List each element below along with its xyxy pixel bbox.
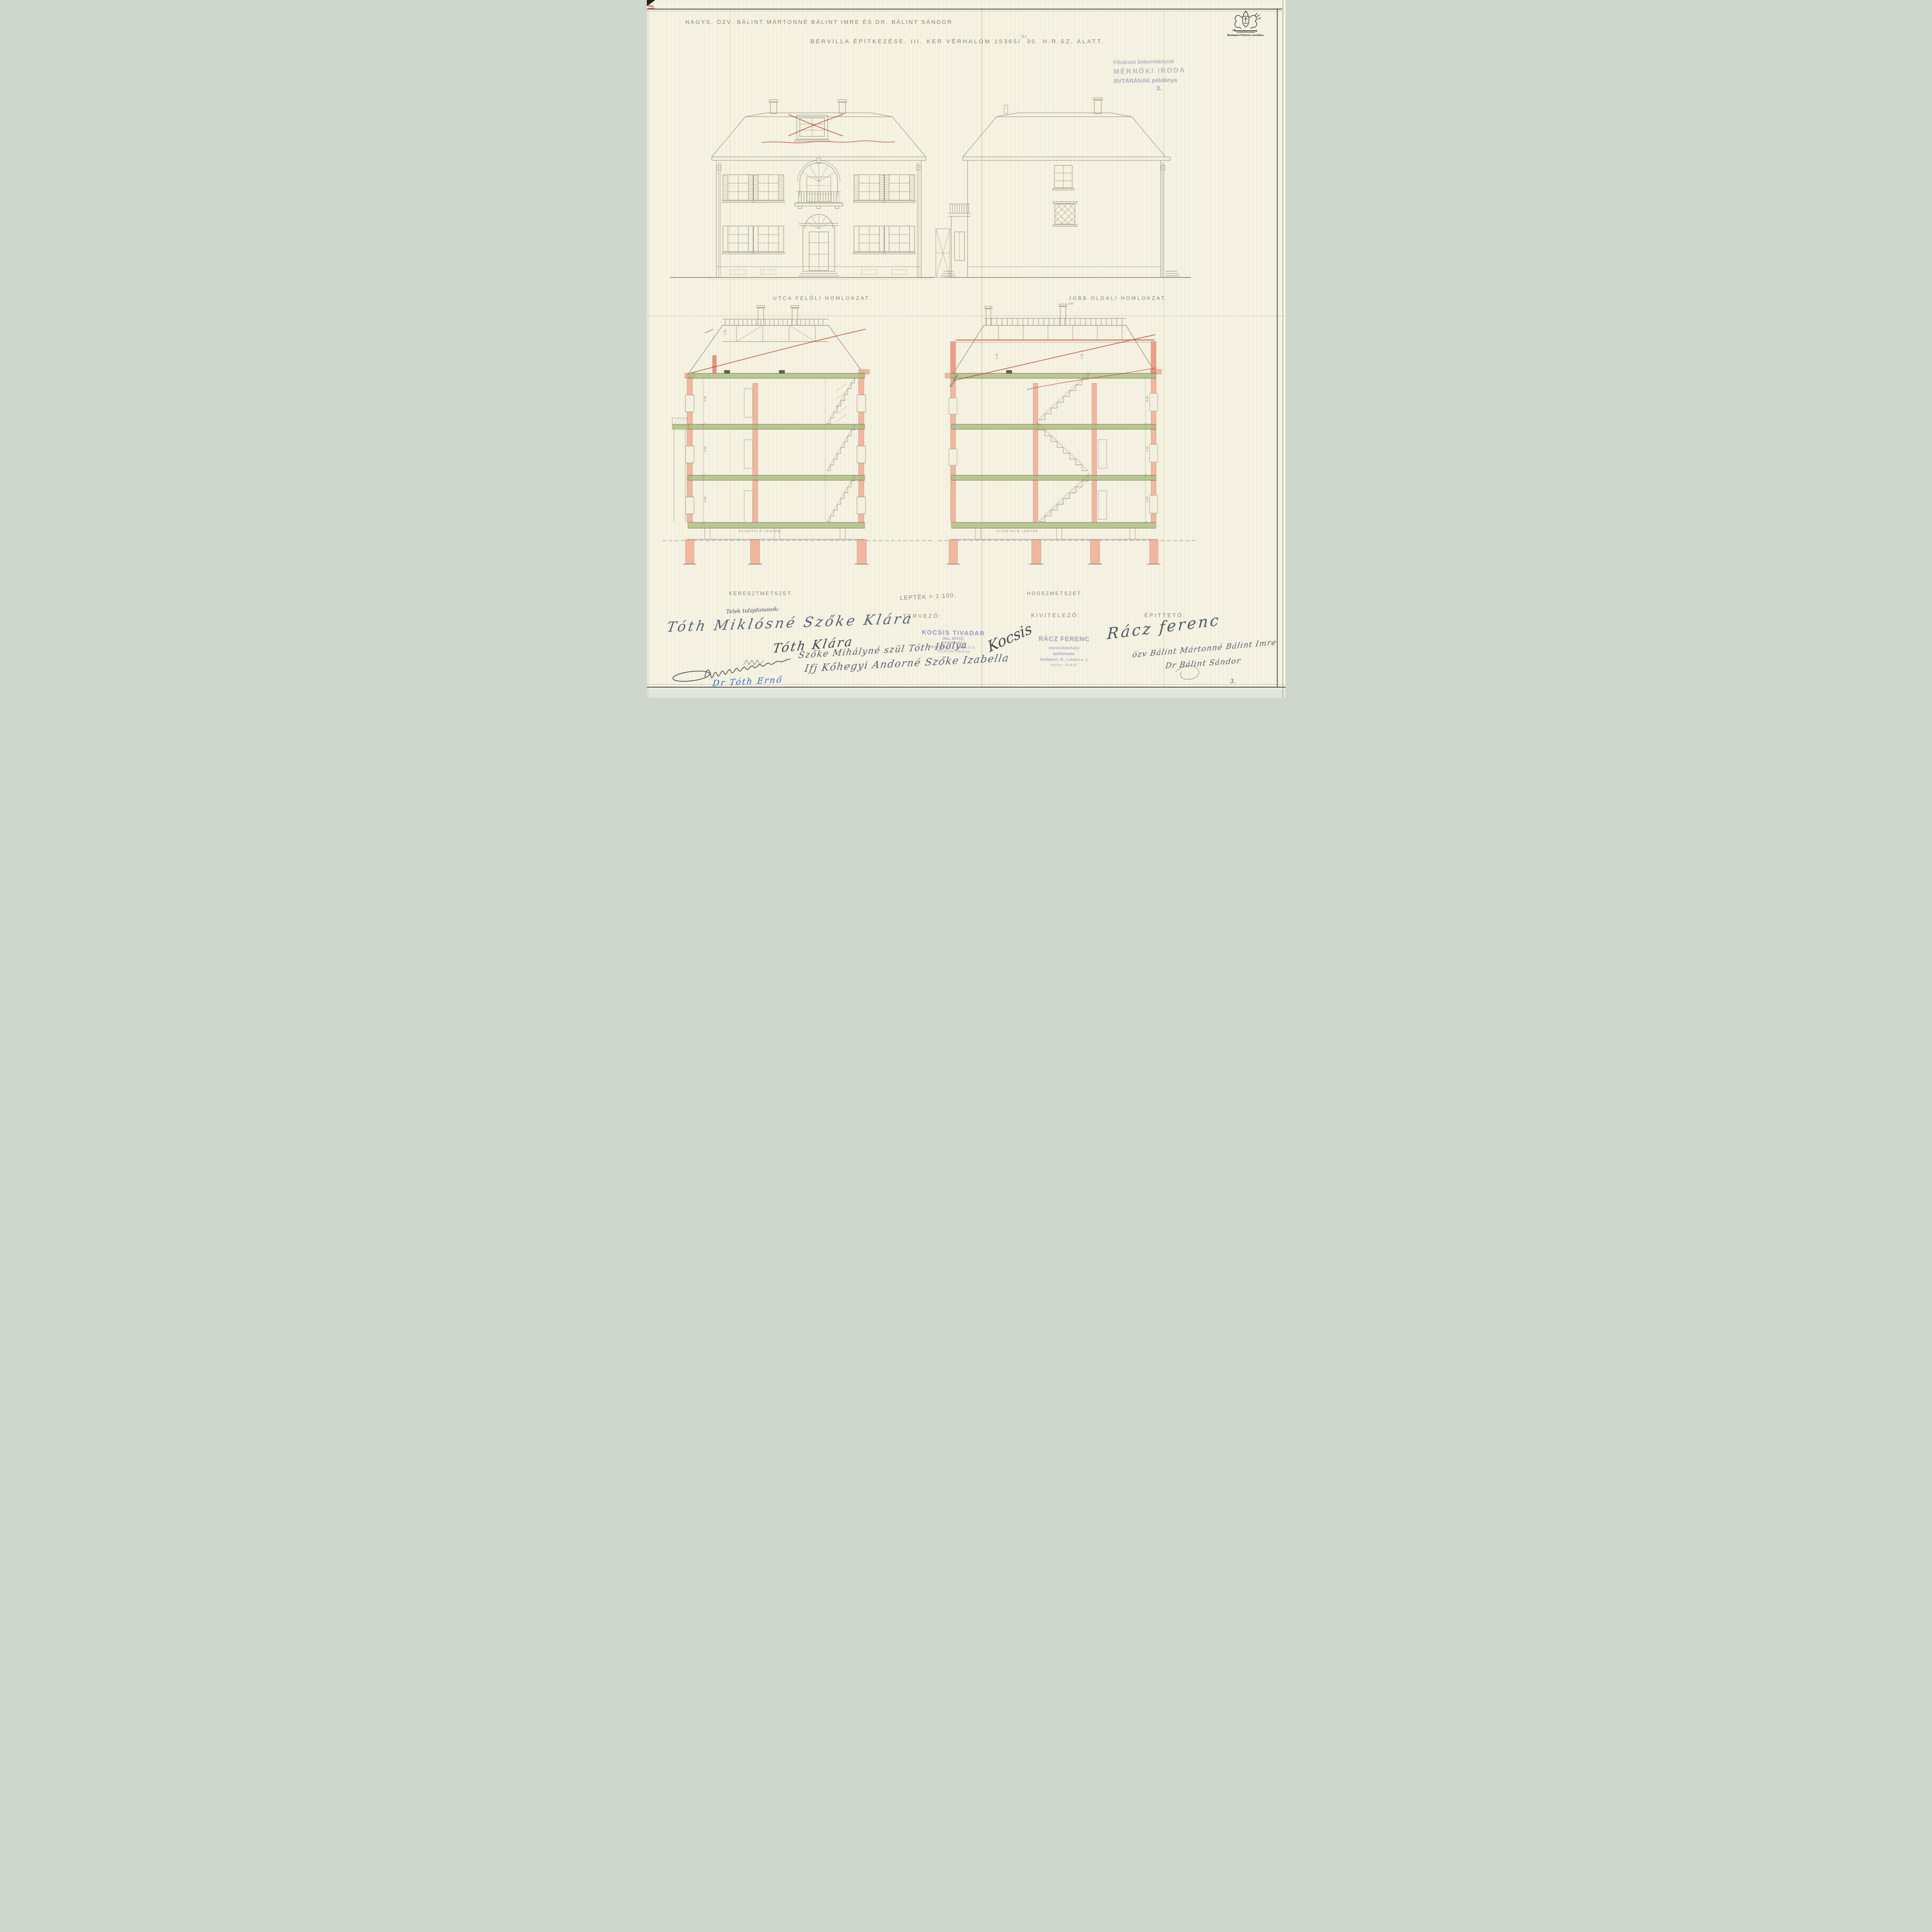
cross-section-drawing: 1.50 3.10 3.10 2.20 <box>662 306 933 564</box>
contractor-stamp-line: marosvásárhelyi <box>1015 646 1113 651</box>
designer-label: TERVEZŐ: <box>903 613 942 619</box>
scanned-drawing-sheet: NAGYS. ÖZV. BÁLINT MÁRTONNÉ BÁLINT IMRE … <box>647 0 1286 698</box>
contractor-stamp-line: építőmester <box>1014 651 1113 656</box>
dim-label: 3.10 <box>704 447 707 452</box>
sheet-page-number: 3. <box>1230 678 1236 685</box>
dim-label: 3.00 <box>1068 302 1073 305</box>
dim-label: 3.10 <box>704 396 707 402</box>
contractor-stamp-name: RÁCZ FERENC <box>1015 635 1113 643</box>
dim-label: 3.10 <box>1146 396 1149 402</box>
side-elevation-label: JOBB OLDALI HOMLOKZAT. <box>1069 295 1168 301</box>
long-section-label: HOSSZMETSZET. <box>1027 590 1084 596</box>
contractor-stamp: RÁCZ FERENC marosvásárhelyi építőmester … <box>1014 635 1113 667</box>
front-elevation-label: UTCA FELŐLI HOMLOKZAT. <box>773 295 872 301</box>
contractor-label: KIVITELEZŐ: <box>1031 612 1081 618</box>
client-label: ÉPITTETŐ: <box>1145 612 1186 618</box>
air-gap-label-cross: SZIGETELŐ LÉGTÉR <box>739 530 781 533</box>
designer-stamp: KOCSIS TIVADAR OKL. ÉPÍTŐ, IPARMŰVÉSZ BU… <box>905 629 1002 655</box>
dim-label: 2.20 <box>1146 497 1149 502</box>
front-elevation-drawing <box>670 100 935 279</box>
contractor-stamp-line: Budapest, III., Lukács-u. 2 <box>1014 657 1113 662</box>
dim-label: 2.70 <box>995 354 998 359</box>
illegible-signature-scrawl <box>672 659 790 683</box>
dim-label: 3.10 <box>1146 447 1149 452</box>
cross-section-label: KERESZTMETSZET. <box>729 590 794 596</box>
dim-label: 1.50 <box>723 330 726 335</box>
dim-label: 2.70 <box>1080 354 1083 359</box>
long-section-drawing: 3.00 2.70 2.70 3.10 3.10 2.20 <box>938 302 1197 564</box>
air-gap-label-long: SZIGETELŐ LÉGTÉR <box>997 530 1039 533</box>
side-elevation-drawing <box>936 98 1191 277</box>
red-pencil-marks-front <box>762 114 895 143</box>
dim-label: 2.20 <box>704 497 707 502</box>
signature-flourish <box>1175 666 1199 679</box>
